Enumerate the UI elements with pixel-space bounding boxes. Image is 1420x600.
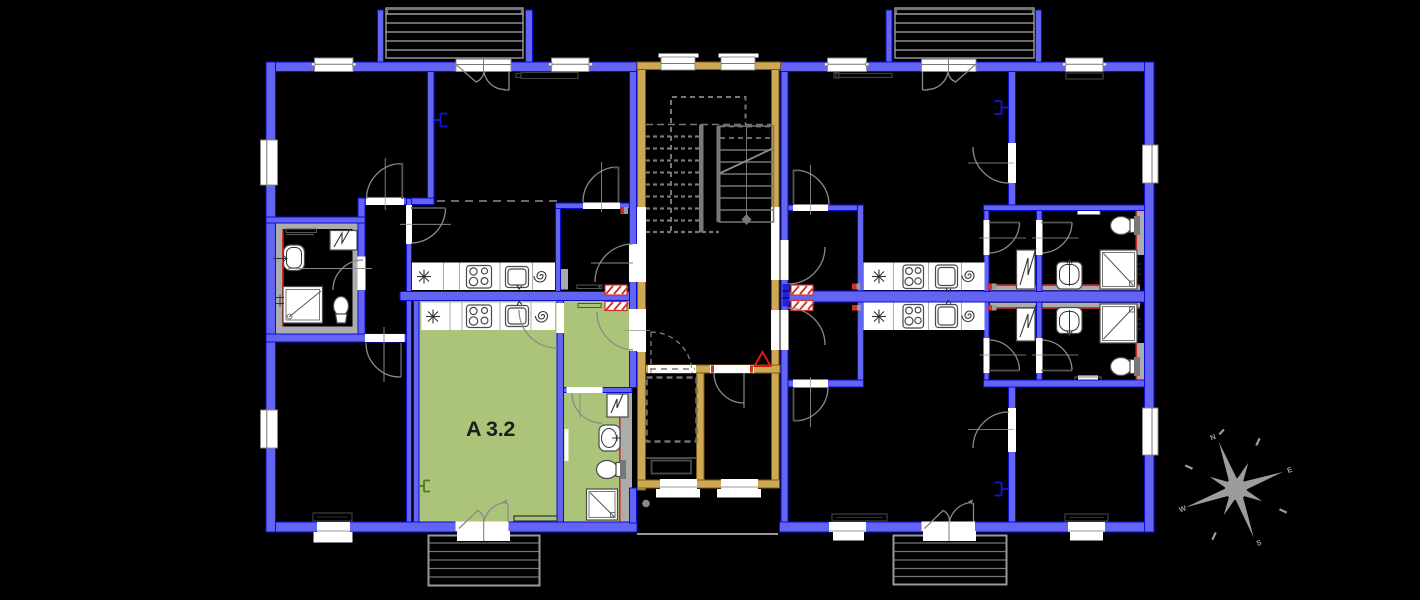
svg-text:A 3.2: A 3.2	[466, 417, 515, 441]
